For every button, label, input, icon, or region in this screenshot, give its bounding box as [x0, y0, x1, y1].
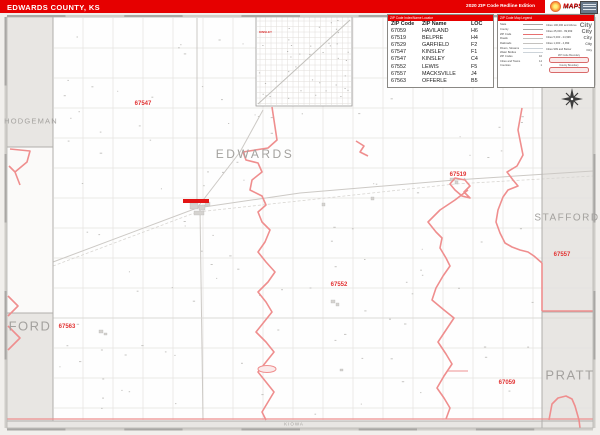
legend-stat-item: Counties1	[500, 64, 544, 68]
kinsley-highlight-bar	[183, 199, 209, 203]
zip-label-67059: 67059	[499, 380, 516, 386]
county-label-hodgeman: HODGEMAN	[4, 117, 58, 126]
zip-index-rows: 67059HAVILANDH667519BELPREH467529GARFIEL…	[388, 28, 493, 85]
map-title: EDWARDS COUNTY, KS	[7, 3, 100, 12]
zip-label-67557: 67557	[554, 252, 571, 258]
publisher-logo: MAPS	[545, 0, 600, 13]
zip-index-row: 67563OFFERLEB5	[388, 78, 493, 85]
legend-city-classes: Cities 100,000 and AboveCityCities 25,00…	[546, 23, 592, 53]
zip-index-row: 67529GARFIELDF2	[388, 42, 493, 49]
zip-index-columns: ZIP Code ZIP Name LOC	[388, 21, 493, 28]
map-legend: ZIP Code Map Legend StateCountyZIP CodeR…	[497, 14, 595, 88]
zip-label-67547: 67547	[135, 101, 152, 107]
logo-burst-icon	[550, 1, 561, 12]
zip-index-table: ZIP Code Index/Name Locator ZIP Code ZIP…	[387, 14, 494, 88]
zip-index-row: 67557MACKSVILLEJ4	[388, 71, 493, 78]
title-bar: EDWARDS COUNTY, KS 2020 ZIP Code Redline…	[0, 0, 545, 13]
zip-index-row: 67547KINSLEYC4	[388, 56, 493, 63]
col-loc: LOC	[471, 21, 493, 28]
zip-label-67552: 67552	[331, 282, 348, 288]
legend-city-class: Cities 999 and BelowCity	[546, 47, 592, 53]
edition-label: 2020 ZIP Code Redline Edition	[466, 4, 535, 9]
col-zip-name: ZIP Name	[422, 21, 471, 28]
zip-index-row: 67059HAVILANDH6	[388, 28, 493, 35]
county-label-edwards: EDWARDS	[216, 147, 294, 161]
logo-address-box	[580, 1, 598, 14]
legend-boundary-sample: County Boundary	[546, 64, 592, 73]
zip-label-67519: 67519	[450, 172, 467, 178]
legend-boundary-sample: ZIP Code Boundary	[546, 54, 592, 63]
county-label-ford: FORD	[9, 319, 52, 334]
legend-stat-items: ZIP Codes10Cities and Towns14Counties1	[500, 55, 544, 68]
inset-title: KINSLEY	[259, 30, 272, 34]
legend-boundary-samples: ZIP Code BoundaryCounty Boundary	[546, 54, 592, 73]
zip-index-row: 67547KINSLEYF1	[388, 49, 493, 56]
hodgeman-county-fill	[7, 17, 53, 147]
col-zip-code: ZIP Code	[391, 21, 422, 28]
zip-index-row: 67552LEWISF5	[388, 64, 493, 71]
zip-label-67563: 67563	[59, 324, 76, 330]
county-label-pratt: PRATT	[545, 368, 594, 383]
zip-index-row: 67519BELPREH4	[388, 35, 493, 42]
county-label-kiowa: KIOWA	[284, 422, 304, 427]
county-label-stafford: STAFFORD	[534, 213, 599, 224]
map-page: HODGEMANEDWARDSSTAFFORDFORDPRATTKIOWA675…	[0, 0, 600, 435]
legend-line-items: StateCountyZIP CodeRoadsRailroadsRivers,…	[500, 23, 544, 56]
